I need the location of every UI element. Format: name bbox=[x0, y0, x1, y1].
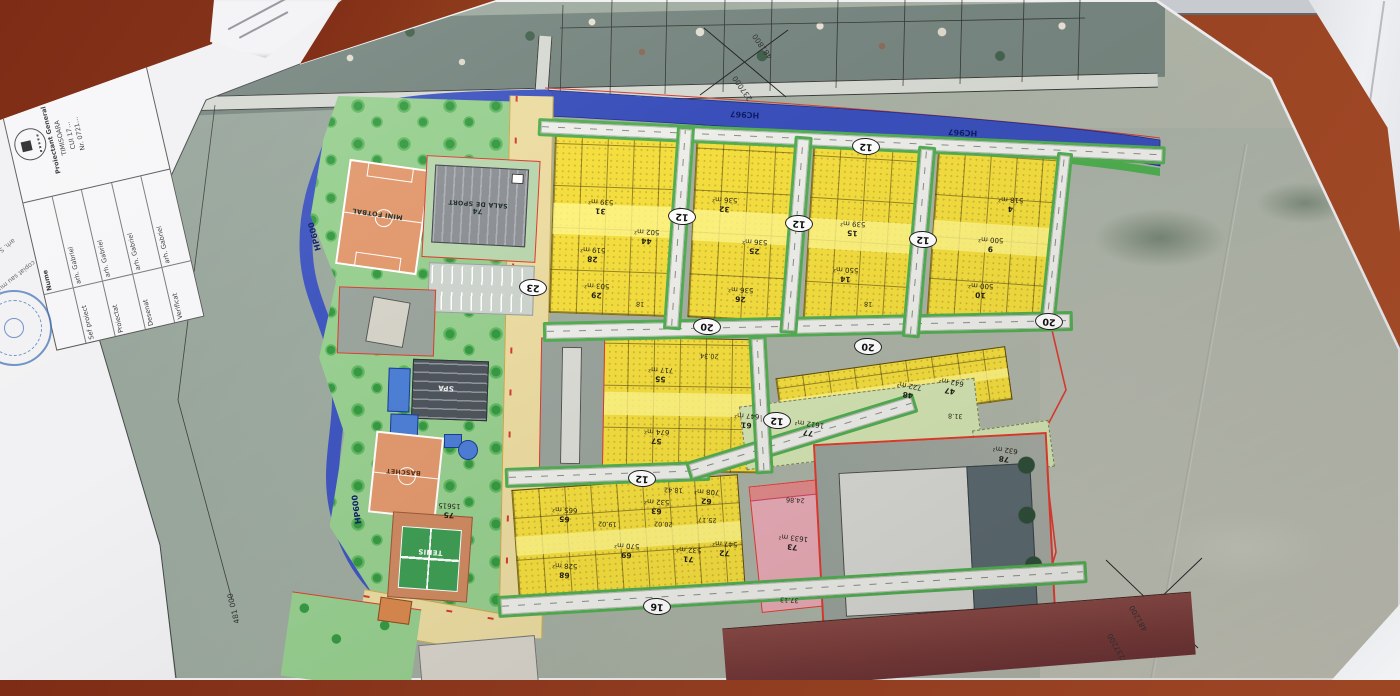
lot-number: 65 bbox=[552, 513, 578, 523]
parcel-label: 55717 m² bbox=[648, 365, 674, 383]
lot-area: 539 m² bbox=[588, 197, 614, 206]
lot-number: 25 bbox=[742, 245, 768, 255]
lot-area: 528 m² bbox=[552, 561, 578, 570]
roof-vent bbox=[511, 174, 524, 185]
lot-number: 57 bbox=[644, 435, 670, 445]
park-area: 15615 bbox=[438, 501, 461, 510]
parking-stalls-top bbox=[431, 265, 532, 286]
dim-label: 19.02 bbox=[598, 520, 617, 529]
parcel-label: 65665 m² bbox=[552, 505, 578, 523]
dim-label: 20.34 bbox=[700, 352, 719, 361]
open-field-aerial bbox=[1040, 128, 1400, 680]
tennis-court bbox=[387, 511, 473, 602]
lot-area: 536 m² bbox=[712, 195, 738, 204]
corner-doc-text-line bbox=[239, 11, 288, 38]
lot-area: 550 m² bbox=[833, 265, 859, 274]
parcel-label: 61647 m² bbox=[734, 411, 760, 429]
street-number: 20 bbox=[861, 341, 875, 353]
parcel-label: 26536 m² bbox=[728, 285, 754, 303]
parcel-label: 68528 m² bbox=[552, 561, 578, 579]
lot-area: 570 m² bbox=[614, 541, 640, 550]
spa-pool-1 bbox=[387, 368, 411, 413]
lot-number: 29 bbox=[584, 289, 610, 299]
lot-number: 10 bbox=[968, 289, 994, 299]
street-number: 20 bbox=[1042, 316, 1056, 328]
lot-number: 68 bbox=[552, 569, 578, 579]
lot-number: 14 bbox=[833, 273, 859, 283]
parcel-label: 72547 m² bbox=[712, 539, 738, 557]
parcel-label: 10500 m² bbox=[968, 281, 994, 299]
parcel-label: 63532 m² bbox=[644, 497, 670, 515]
dim-label: 25.17 bbox=[698, 516, 717, 525]
parcel-73-dim-bottom: 37.13 bbox=[780, 596, 799, 605]
street-number: 12 bbox=[770, 415, 784, 427]
dim-label: 18 bbox=[864, 300, 873, 308]
lot-area: 536 m² bbox=[728, 285, 754, 294]
parcel-label: 29503 m² bbox=[584, 281, 610, 299]
lot-area: 500 m² bbox=[968, 281, 994, 290]
dim-label: 20.02 bbox=[654, 520, 673, 529]
lot-number: 9 bbox=[978, 243, 1004, 253]
dim-label: 31.8 bbox=[948, 412, 963, 421]
street-number: 12 bbox=[635, 473, 649, 485]
channel-label: HC967 bbox=[730, 109, 760, 120]
lot-number: 26 bbox=[728, 293, 754, 303]
parcel-73-dim-top: 24.86 bbox=[786, 496, 805, 505]
dim-label: 18 bbox=[636, 300, 645, 308]
street-number: 20 bbox=[700, 321, 714, 333]
building-bottom-white bbox=[418, 635, 539, 693]
street-number: 12 bbox=[792, 218, 806, 230]
lot-number: 72 bbox=[712, 547, 738, 557]
street-mid-vertical-lane bbox=[752, 339, 771, 471]
lot-area: 502 m² bbox=[634, 227, 660, 236]
lot-area: 647 m² bbox=[734, 411, 760, 420]
lot-number: 44 bbox=[634, 235, 660, 245]
lot-number: 63 bbox=[644, 505, 670, 515]
parcel-label: 28519 m² bbox=[580, 245, 606, 263]
plan-sheet: 12 12 12 12 12 12 16 20 20 20 23 HC967 H… bbox=[0, 0, 1400, 680]
street-number: 12 bbox=[916, 234, 930, 246]
street-number: 12 bbox=[859, 141, 873, 153]
park-lot: 75 bbox=[438, 509, 461, 519]
lot-number: 69 bbox=[614, 549, 640, 559]
parcel-label: 44502 m² bbox=[634, 227, 660, 245]
lot-number: 32 bbox=[712, 203, 738, 213]
lot-number: 71 bbox=[676, 553, 702, 563]
parcel-label: 4518 m² bbox=[998, 195, 1024, 213]
parcel-label: 62708 m² bbox=[694, 487, 720, 505]
lot-number: 4 bbox=[998, 203, 1024, 213]
channel-label-2: HC967 bbox=[948, 127, 978, 138]
park-pond bbox=[458, 440, 478, 460]
parcel-label: 15539 m² bbox=[840, 219, 866, 237]
lot-number: 61 bbox=[734, 419, 760, 429]
lot-area: 539 m² bbox=[840, 219, 866, 228]
park-building bbox=[365, 296, 410, 348]
lot-area: 717 m² bbox=[648, 365, 674, 374]
lot-area: 674 m² bbox=[644, 427, 670, 436]
lot-number: 31 bbox=[588, 205, 614, 215]
lot-area: 519 m² bbox=[580, 245, 606, 254]
lot-area: 532 m² bbox=[676, 545, 702, 554]
park-parcel-label: 75 15615 bbox=[438, 501, 461, 519]
existing-building-parcel-west bbox=[539, 337, 605, 475]
parcel-block-nw bbox=[549, 126, 679, 317]
street-number: 23 bbox=[526, 282, 540, 294]
lot-area: 518 m² bbox=[998, 195, 1024, 204]
parcel-73-label: 73 1633 m² bbox=[777, 532, 808, 552]
lot-area: 665 m² bbox=[552, 505, 578, 514]
parcel-label: 14550 m² bbox=[833, 265, 859, 283]
tennis-label: TENIS bbox=[418, 547, 443, 557]
lot-number: 28 bbox=[580, 253, 606, 263]
lot-area: 708 m² bbox=[694, 487, 720, 496]
lot-area: 503 m² bbox=[584, 281, 610, 290]
lot-area: 547 m² bbox=[712, 539, 738, 548]
lot-area: 536 m² bbox=[742, 237, 768, 246]
park-building-parcel bbox=[337, 286, 436, 356]
lot-number: 15 bbox=[840, 227, 866, 237]
parking-stalls-bottom bbox=[430, 291, 531, 312]
orange-roof-building bbox=[377, 597, 412, 625]
parcel-label: 32536 m² bbox=[712, 195, 738, 213]
spa-label: SPA bbox=[438, 383, 454, 392]
lot-area: 532 m² bbox=[644, 497, 670, 506]
lot-number: 55 bbox=[648, 373, 674, 383]
dim-label: 18.42 bbox=[664, 486, 683, 495]
bottom-green-parcel bbox=[281, 591, 422, 693]
parcel-label: 25536 m² bbox=[742, 237, 768, 255]
parcel-label: 71532 m² bbox=[676, 545, 702, 563]
street-number: 12 bbox=[675, 211, 689, 223]
street-number: 16 bbox=[650, 601, 664, 613]
existing-building-west bbox=[560, 347, 582, 464]
parcel-label: 69570 m² bbox=[614, 541, 640, 559]
parcel-label: 57674 m² bbox=[644, 427, 670, 445]
parcel-78-label: 78 632 m² bbox=[991, 444, 1018, 464]
street-12-low-west-lane bbox=[508, 464, 707, 485]
parcel-label: 31539 m² bbox=[588, 197, 614, 215]
lot-number: 62 bbox=[694, 495, 720, 505]
parcel-label: 9500 m² bbox=[978, 235, 1004, 253]
desk-photo: 12 12 12 12 12 12 16 20 20 20 23 HC967 H… bbox=[0, 0, 1400, 680]
tennis-inner bbox=[398, 526, 462, 592]
lot-area: 500 m² bbox=[978, 235, 1004, 244]
